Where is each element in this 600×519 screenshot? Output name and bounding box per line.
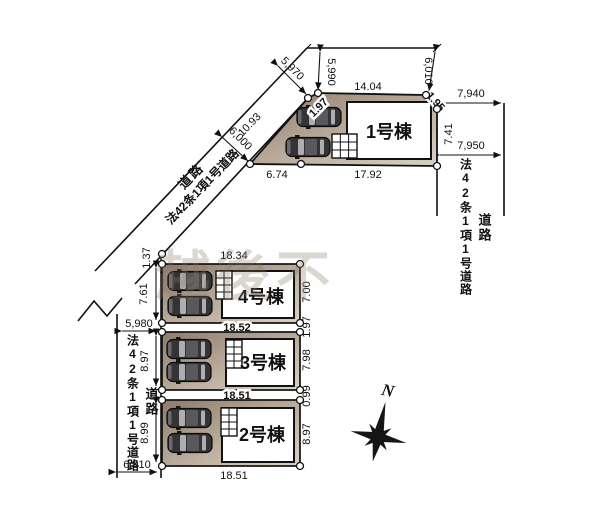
dim-lot1-top: 14.04	[354, 81, 382, 93]
dim-lot2-bottom: 18.51	[220, 470, 248, 482]
dim-lot4-left: 7.61	[138, 283, 150, 304]
dim-lot3-right: 7.98	[301, 349, 313, 370]
left-road-law-name: 法42条1項1号道路	[125, 334, 142, 472]
right-road-law-name: 法42条1項1号道路	[458, 158, 475, 296]
dim-left-road-top: 5,980	[125, 318, 153, 330]
dim-right-road-bottom: 7,950	[457, 140, 485, 152]
site-plan-drawing: 5,980 6,010 7,940 7,950 1号棟	[0, 0, 600, 519]
building-3-label: 3号棟	[240, 352, 287, 373]
dim-lot2-right: 8.97	[301, 423, 313, 444]
dim-lot1-6010: 6,010	[422, 57, 434, 85]
dim-lot1-right: 7.41	[443, 123, 455, 144]
dim-lot1-5990: 5,990	[325, 58, 337, 86]
site-plan-page: 越後不 道路 法42条1項1号道路 道路 法42条1項1号道路 道路 法42条1…	[0, 0, 600, 519]
left-road-name: 道路	[142, 387, 161, 417]
dim-lot4-top: 18.34	[220, 250, 248, 262]
lot-2: 2号棟	[162, 400, 300, 466]
dim-road-5970: 5,970	[278, 55, 306, 83]
building-4-label: 4号棟	[238, 286, 285, 307]
right-road-name: 道路	[475, 213, 494, 243]
dim-lot1-bottom: 17.92	[354, 169, 382, 181]
building-2-label: 2号棟	[239, 424, 286, 445]
compass: N	[345, 375, 418, 467]
road-break-mark	[78, 298, 122, 321]
lot-4: 4号棟	[162, 264, 300, 323]
dim-lot1-bottom-left: 6.74	[266, 169, 287, 181]
lot-3: 3号棟	[162, 332, 300, 390]
dim-lot4-right: 7.00	[301, 281, 313, 302]
compass-north-label: N	[379, 380, 397, 401]
building-1-label: 1号棟	[366, 121, 413, 142]
dim-right-road-top: 7,940	[457, 88, 485, 100]
